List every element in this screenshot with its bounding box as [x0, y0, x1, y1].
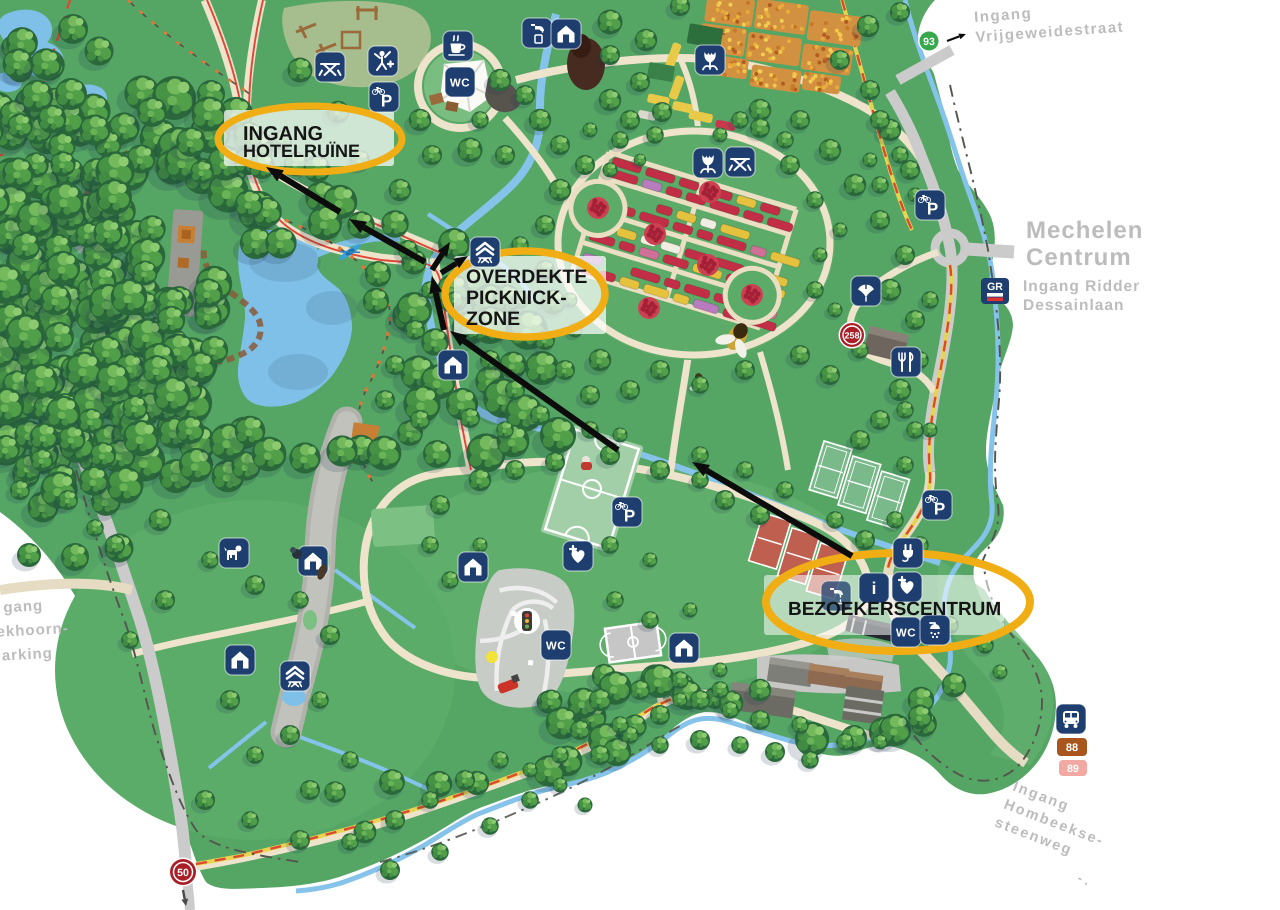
svg-text:Ingang Ridder: Ingang Ridder	[1023, 278, 1140, 295]
svg-text:GR: GR	[987, 281, 1003, 293]
svg-text:88: 88	[1066, 742, 1078, 754]
svg-text:i: i	[872, 579, 877, 598]
svg-text:Dessainlaan: Dessainlaan	[1023, 297, 1124, 314]
svg-text:PICKNICK-: PICKNICK-	[466, 287, 567, 309]
svg-text:WC: WC	[896, 628, 916, 640]
svg-text:Mechelen: Mechelen	[1026, 217, 1143, 244]
svg-text:ZONE: ZONE	[466, 308, 520, 330]
svg-text:arking: arking	[1, 645, 53, 665]
svg-text:BEZOEKERSCENTRUM: BEZOEKERSCENTRUM	[788, 599, 1001, 620]
svg-text:258: 258	[844, 331, 859, 341]
svg-text:89: 89	[1067, 763, 1079, 775]
svg-text:gang: gang	[3, 597, 44, 616]
svg-text:WC: WC	[546, 641, 566, 653]
svg-text:HOTELRUÏNE: HOTELRUÏNE	[243, 141, 360, 161]
svg-text:Centrum: Centrum	[1026, 244, 1132, 271]
svg-text:50: 50	[177, 867, 189, 879]
svg-text:OVERDEKTE: OVERDEKTE	[466, 266, 587, 288]
svg-text:WC: WC	[450, 78, 470, 90]
svg-text:93: 93	[923, 36, 935, 48]
